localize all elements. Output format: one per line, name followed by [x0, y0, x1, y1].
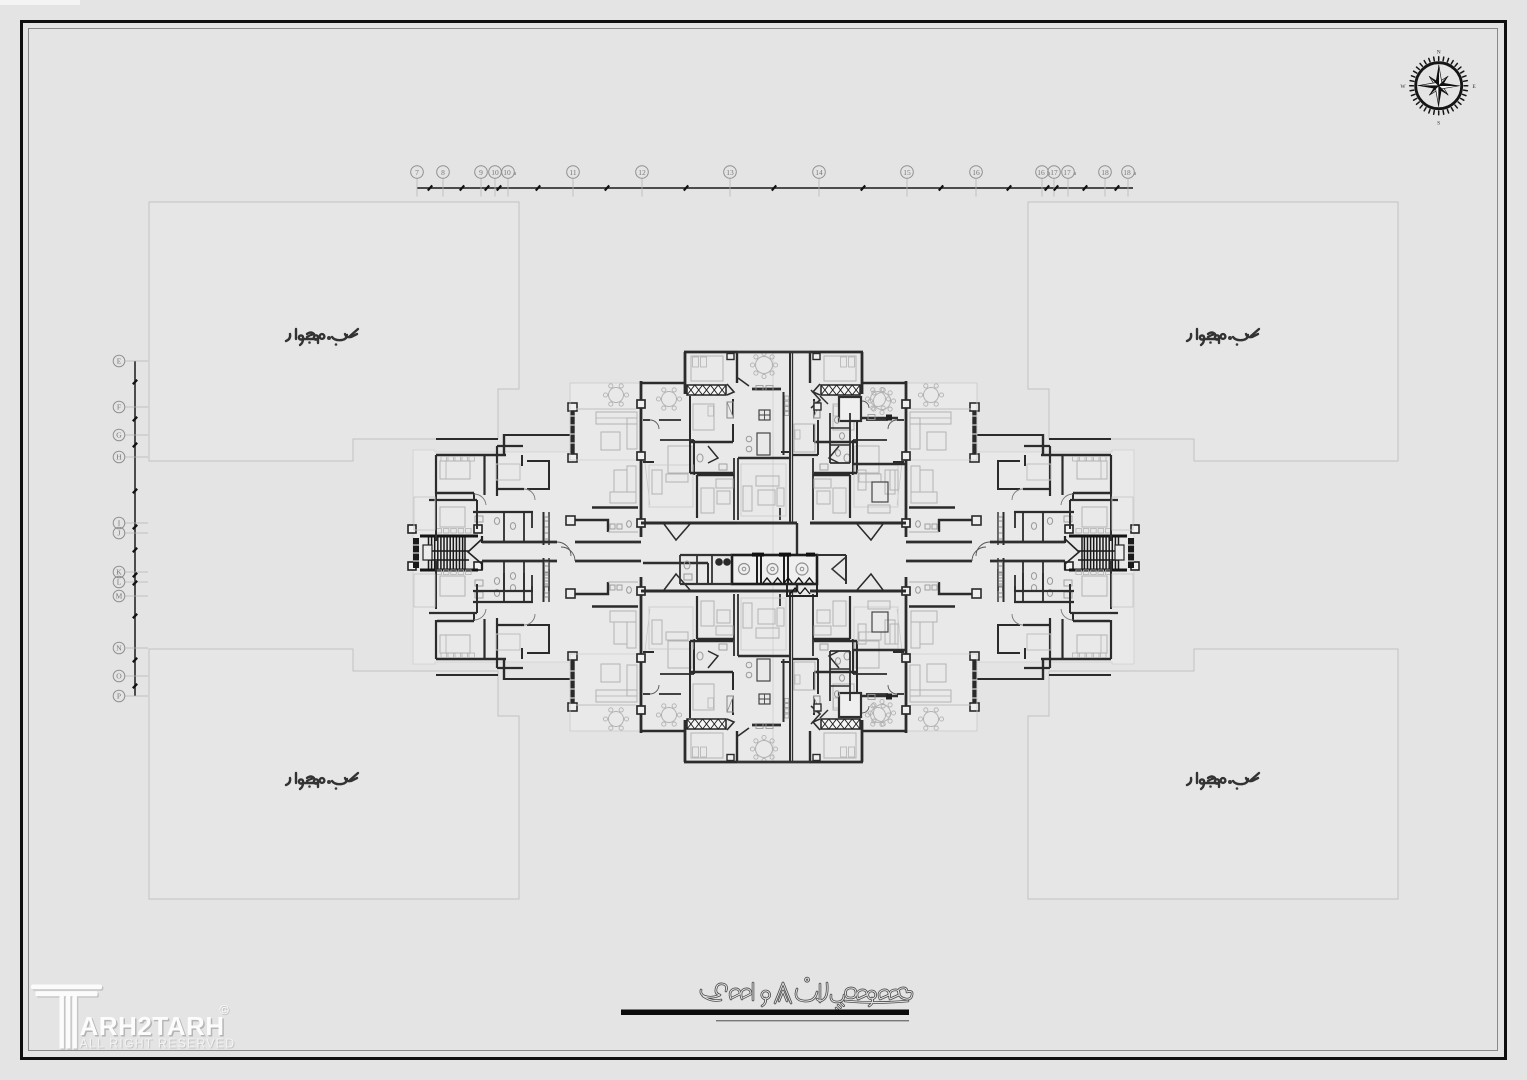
svg-text:J: J: [118, 529, 121, 538]
svg-text:10: 10: [491, 168, 499, 177]
svg-text:M: M: [116, 592, 123, 601]
svg-text:L: L: [117, 578, 122, 587]
svg-text:W: W: [1400, 84, 1406, 90]
svg-text:K: K: [116, 568, 122, 577]
svg-text:15: 15: [903, 168, 911, 177]
svg-text:ALL RIGHT RESERVED: ALL RIGHT RESERVED: [80, 1037, 236, 1051]
svg-text:16: 16: [1037, 168, 1045, 177]
svg-text:N: N: [1437, 50, 1441, 56]
svg-text:11: 11: [569, 168, 576, 177]
svg-text:16: 16: [972, 168, 980, 177]
svg-text:©: ©: [219, 1002, 229, 1017]
svg-text:a: a: [1134, 171, 1137, 177]
svg-text:N: N: [116, 644, 122, 653]
svg-text:9: 9: [479, 168, 483, 177]
svg-text:P: P: [117, 692, 121, 701]
svg-text:12: 12: [638, 168, 646, 177]
svg-text:F: F: [117, 403, 121, 412]
svg-text:a: a: [514, 171, 517, 177]
svg-text:H: H: [116, 453, 122, 462]
svg-text:13: 13: [726, 168, 734, 177]
svg-text:8: 8: [441, 168, 445, 177]
svg-text:10: 10: [503, 168, 511, 177]
svg-text:E: E: [117, 357, 122, 366]
svg-text:O: O: [116, 672, 122, 681]
svg-text:17: 17: [1063, 168, 1071, 177]
svg-text:S: S: [1437, 121, 1440, 127]
svg-text:7: 7: [415, 168, 419, 177]
svg-text:14: 14: [815, 168, 823, 177]
svg-text:18: 18: [1123, 168, 1131, 177]
svg-text:17: 17: [1050, 168, 1058, 177]
svg-text:G: G: [116, 431, 122, 440]
svg-text:a: a: [1074, 171, 1077, 177]
svg-text:18: 18: [1101, 168, 1109, 177]
